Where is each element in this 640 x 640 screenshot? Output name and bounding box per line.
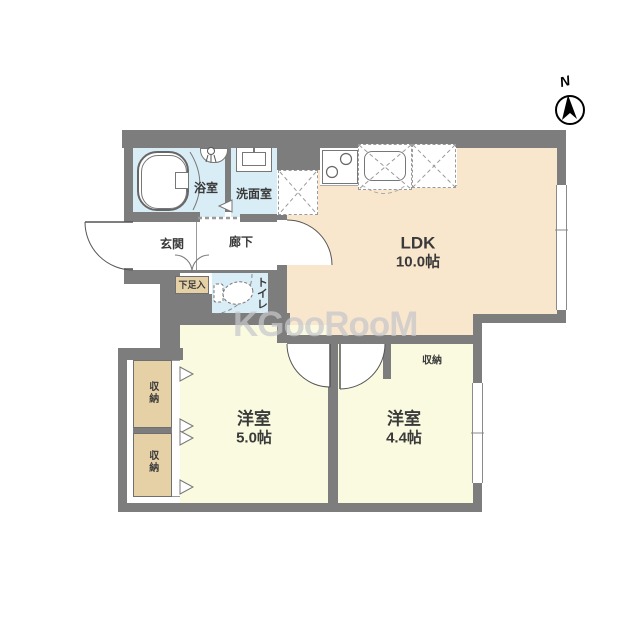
label-bedroom2: 洋室 4.4帖: [386, 410, 422, 447]
label-ldk: LDK 10.0帖: [396, 234, 440, 271]
bedroom2-door-swing: [340, 344, 385, 389]
label-closet-west-upper: 収納: [146, 381, 158, 405]
label-bedroom1: 洋室 5.0帖: [236, 410, 272, 447]
kitchen-cabinet-swing: [362, 185, 406, 194]
bedroom2-area: 4.4帖: [386, 429, 422, 446]
bedroom1-door-swing: [287, 344, 330, 387]
shower-icon: [206, 148, 216, 163]
bedroom1-area: 5.0帖: [236, 429, 272, 446]
washroom-door-arrow-icon: [219, 200, 232, 212]
ldk-door-swing: [287, 220, 332, 265]
bedroom2-name: 洋室: [386, 410, 422, 430]
stove-burners-icon: [327, 154, 352, 178]
bedroom1-name: 洋室: [236, 410, 272, 430]
ldk-name: LDK: [396, 234, 440, 254]
sink-x-mark: [359, 145, 411, 189]
label-closet-west-lower: 収納: [146, 450, 158, 474]
north-compass: N: [545, 72, 597, 130]
toilet-icon: [214, 279, 255, 307]
label-closet-bedroom2: 収納: [422, 355, 442, 367]
compass-north-label: N: [558, 72, 573, 90]
entrance-door-swing: [85, 222, 133, 270]
closet-sliding-arrows: [180, 367, 193, 494]
watermark: KGooRooM: [233, 305, 417, 345]
floorplan-canvas: LDK 10.0帖 洋室 5.0帖 洋室 4.4帖 浴室 洗面室 玄関 廊下 ト…: [0, 0, 640, 640]
shoe-cabinet-door-swings: [175, 255, 209, 272]
label-hallway: 廊下: [229, 236, 253, 250]
refrigerator-x-mark: [413, 145, 455, 187]
label-washroom: 洗面室: [236, 188, 272, 202]
label-shoe-cabinet: 下足入: [178, 280, 205, 290]
washer-x-mark: [280, 172, 316, 213]
ldk-area: 10.0帖: [396, 253, 440, 270]
label-entrance: 玄関: [160, 238, 184, 252]
label-bathroom: 浴室: [194, 182, 218, 196]
